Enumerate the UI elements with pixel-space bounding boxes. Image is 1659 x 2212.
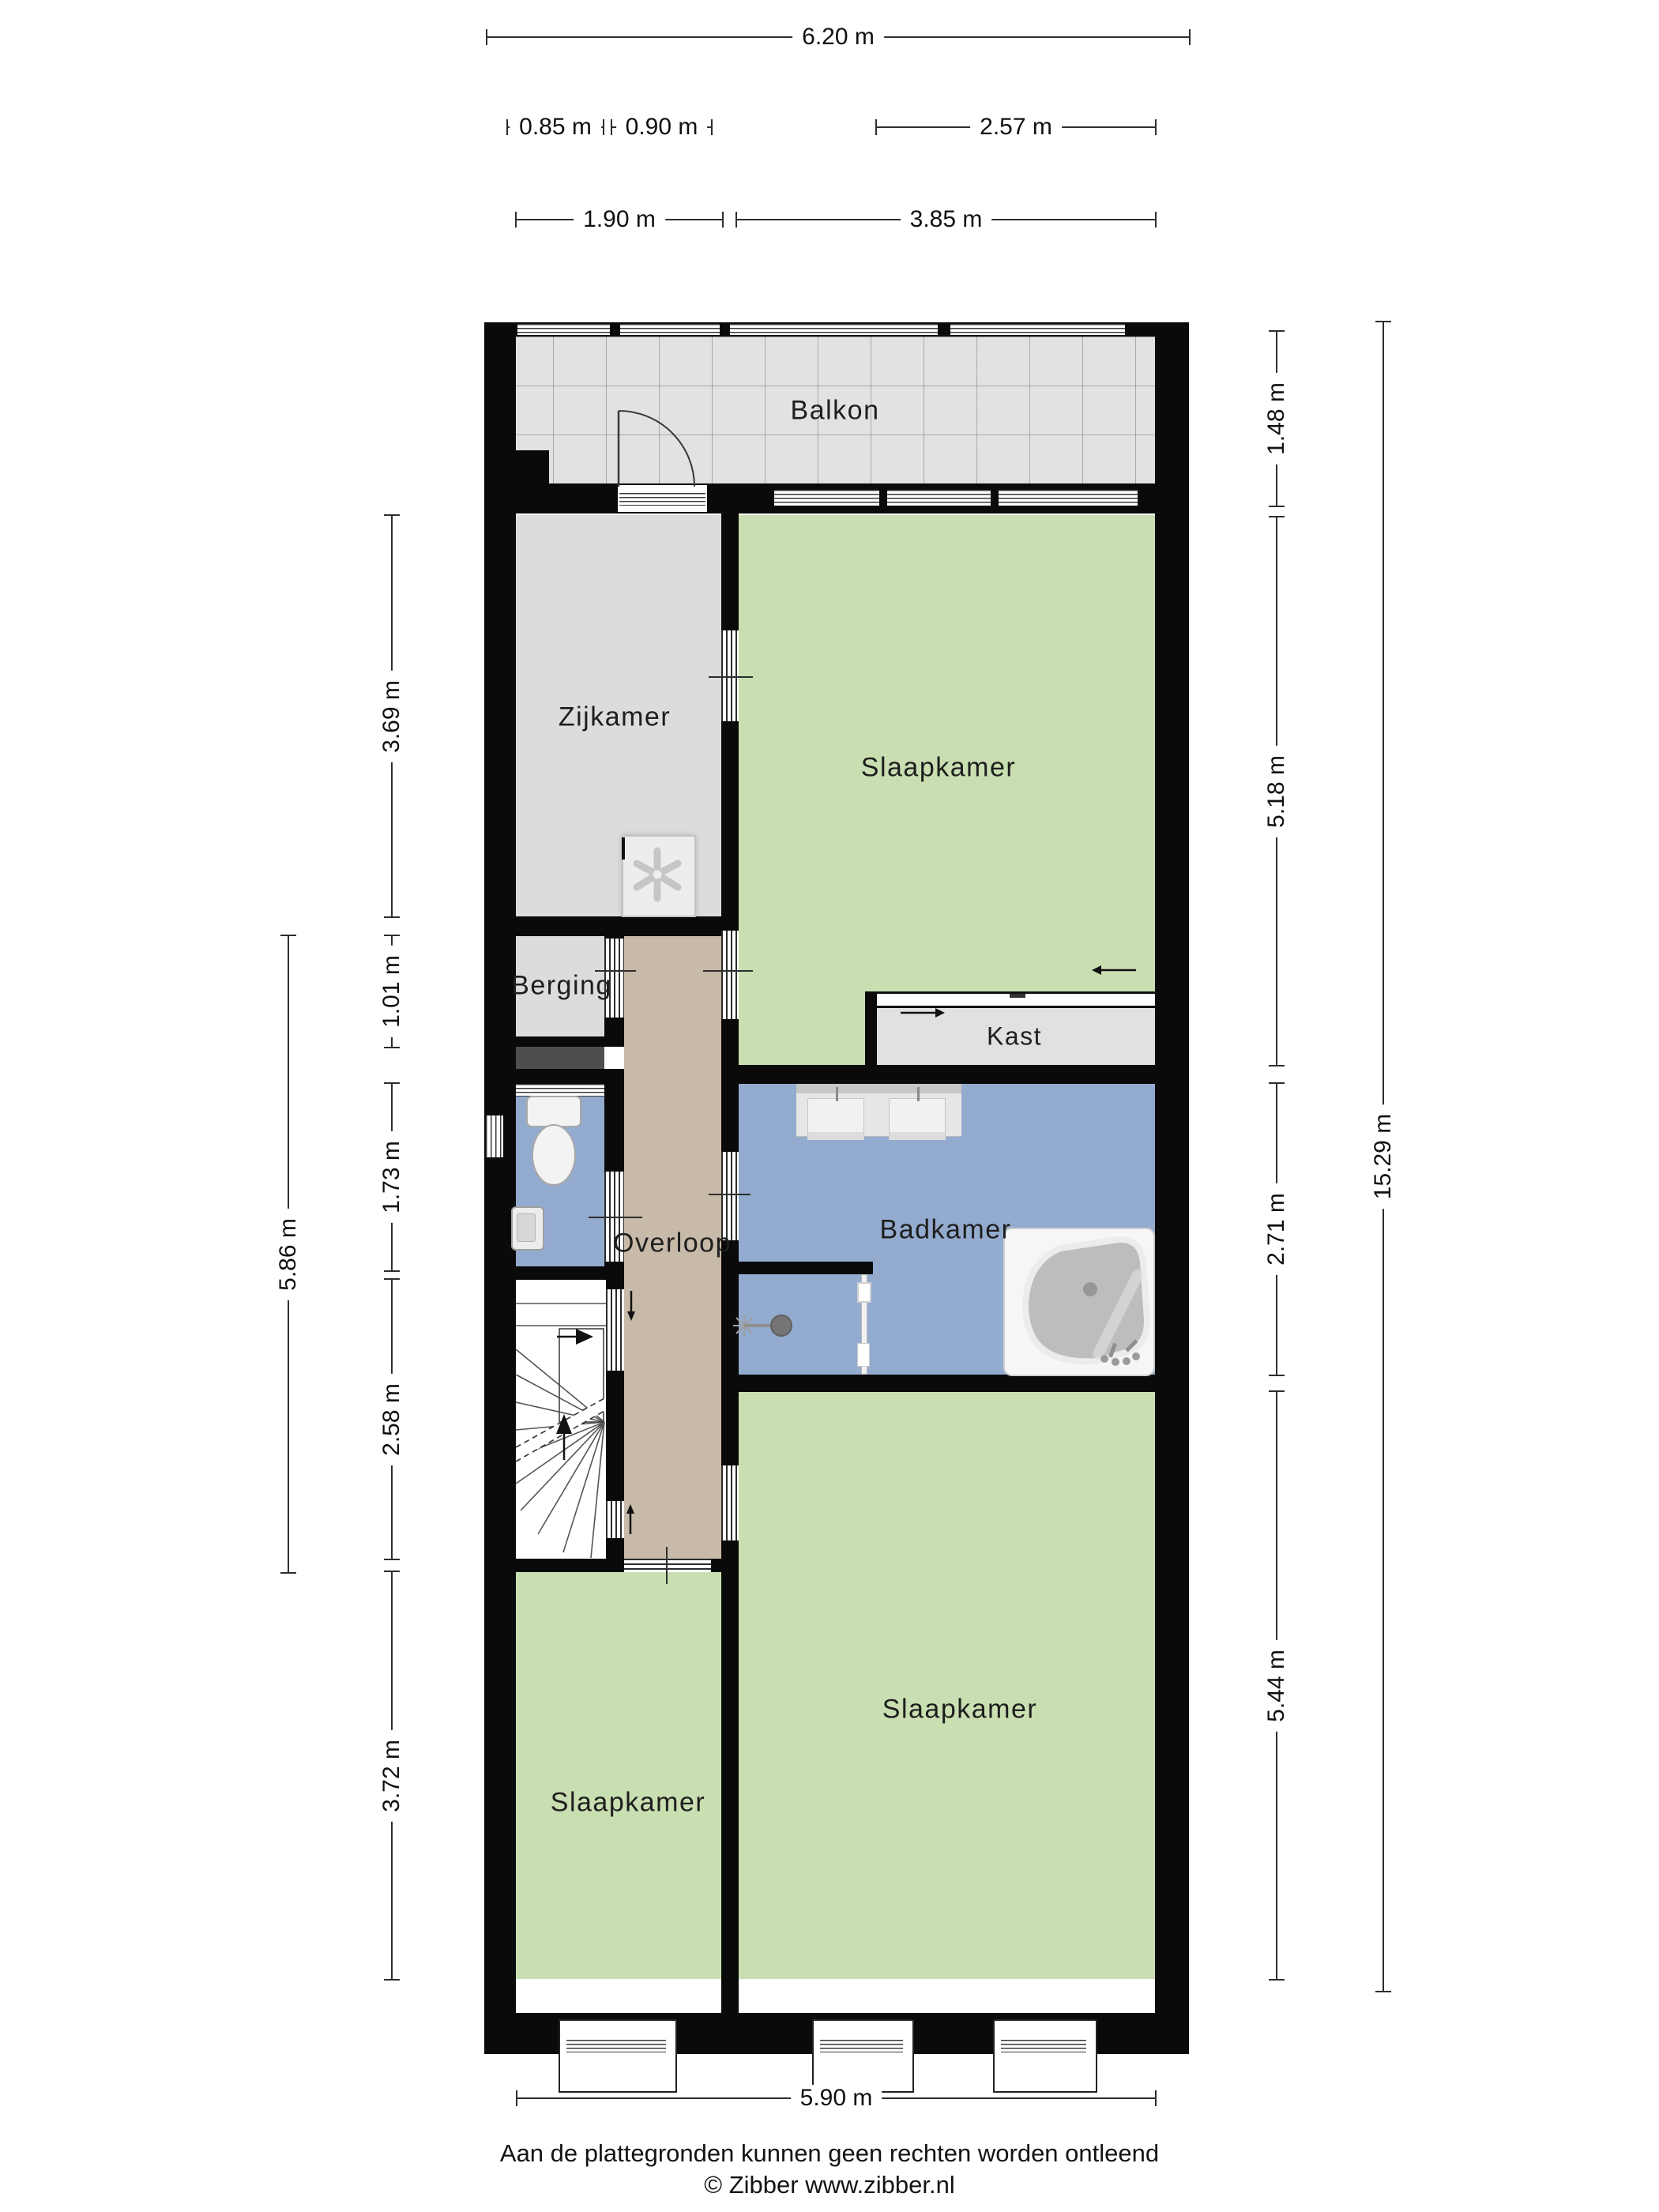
wall-kast-west [865,991,877,1065]
door-slaapkamer-left [624,1559,711,1572]
vanity-back-edge [796,1084,961,1093]
slaapkamer-left-floor [516,1572,721,1979]
dim-left-372: 3.72 m [391,1572,393,1979]
dim-top-085: 0.85 m [508,126,603,128]
shower-icon [733,1305,799,1346]
fan-icon [626,841,689,908]
balcony-south-window-1 [774,490,879,506]
dim-left-586: 5.86 m [288,936,289,1572]
tick-toilet-door [589,1217,642,1218]
balcony-north-window-2 [620,324,720,335]
wall-toilet-south [506,1266,624,1280]
kast-track-stop [1010,994,1025,998]
dim-right-518: 5.18 m [1276,517,1277,1065]
bottom-window-3-glass [1001,2040,1086,2052]
tick-slaapkamer-left-door [666,1547,668,1584]
vent-unit-mark [622,837,625,860]
door-slaapkamer-top [721,931,739,1019]
bottom-window-3 [993,2019,1097,2093]
vanity-sink-2 [889,1098,946,1140]
dim-top-total: 6.20 m [487,36,1189,38]
tick-divider-window [709,676,753,678]
label-slaapkamer-top: Slaapkamer [861,753,1016,784]
slaapkamer-right-floor [739,1392,1155,1979]
wall-berging-south [516,1036,624,1047]
wall-balcony-notch [516,450,549,483]
bottom-window-2-glass [820,2040,903,2052]
dim-left-369: 3.69 m [391,516,393,916]
dim-bottom-total: 5.90 m [517,2097,1155,2099]
balcony-south-window-3 [999,490,1138,506]
wall-badkamer-south [739,1375,1155,1392]
wall-stairs-south [506,1559,624,1572]
stairs-icon [516,1280,606,1559]
balcony-door-swing-icon [612,407,703,517]
dim-top-090: 0.90 m [612,126,711,128]
bottom-sill-right [739,1979,1155,2013]
toilet-icon [510,1095,604,1188]
footer-copyright: © Zibber www.zibber.nl [0,2171,1659,2199]
bottom-window-1 [559,2019,677,2093]
bottom-window-1-glass [566,2040,666,2052]
balcony-north-window-3 [730,324,938,335]
wall-overloop-south-stub [711,1559,721,1572]
label-overloop: Overloop [613,1228,732,1259]
balcony-north-window-4 [950,324,1125,335]
kast-arrow-left-icon [1090,962,1139,978]
dim-left-258: 2.58 m [391,1280,393,1559]
floorplan-page: Balkon Zijkamer Slaapkamer Berging Kast … [0,0,1659,2212]
balcony-south-window-2 [887,490,991,506]
label-slaapkamer-right: Slaapkamer [882,1695,1037,1725]
dim-top-190: 1.90 m [517,219,722,220]
duct-strip [516,1047,604,1069]
hand-basin-bowl [517,1213,536,1242]
label-zijkamer: Zijkamer [559,702,671,733]
stair-arrow-down-icon [625,1289,638,1322]
wall-shower-stub [739,1262,873,1274]
label-berging: Berging [511,971,612,1002]
tick-slaapkamer-top-door [703,970,753,972]
bottom-sill-left [516,1979,721,2013]
balcony-north-window-1 [517,324,610,335]
slaapkamer-top-floor [739,515,1155,1065]
label-badkamer: Badkamer [880,1215,1012,1246]
vanity-sink-1 [807,1098,864,1140]
dim-right-271: 2.71 m [1276,1084,1277,1375]
door-badkamer [721,1152,739,1240]
door-slaapkamer-right [721,1465,739,1540]
wall-zijkamer-south [516,916,739,936]
bathtub-icon [1003,1228,1155,1376]
footer-disclaimer: Aan de plattegronden kunnen geen rechten… [0,2139,1659,2168]
stairs-opening-top [606,1289,624,1371]
dim-left-173: 1.73 m [391,1084,393,1270]
toilet-window [486,1115,503,1157]
vanity-faucet-1 [836,1087,838,1101]
stairs-opening-bottom [606,1501,624,1538]
shower-screen-handle [857,1282,871,1303]
label-balkon: Balkon [791,396,880,427]
kast-arrow-right-icon [899,1005,948,1021]
tick-badkamer-door [709,1194,750,1195]
wall-right [1155,322,1189,2013]
dim-right-148: 1.48 m [1276,332,1277,506]
wall-badkamer-north [739,1065,1155,1084]
dim-right-544: 5.44 m [1276,1392,1277,1979]
bottom-window-2 [812,2019,914,2093]
stair-arrow-up-icon [624,1503,637,1536]
dim-top-385: 3.85 m [737,219,1155,220]
shower-screen-grip [857,1343,870,1367]
vanity-faucet-2 [917,1087,920,1101]
dim-left-101: 1.01 m [391,936,393,1047]
label-slaapkamer-left: Slaapkamer [551,1788,705,1819]
wall-above-toilet [506,1069,624,1084]
label-kast: Kast [987,1022,1042,1051]
dim-top-257: 2.57 m [877,126,1155,128]
wall-divider [721,513,739,2013]
dim-right-total: 15.29 m [1382,322,1384,1991]
